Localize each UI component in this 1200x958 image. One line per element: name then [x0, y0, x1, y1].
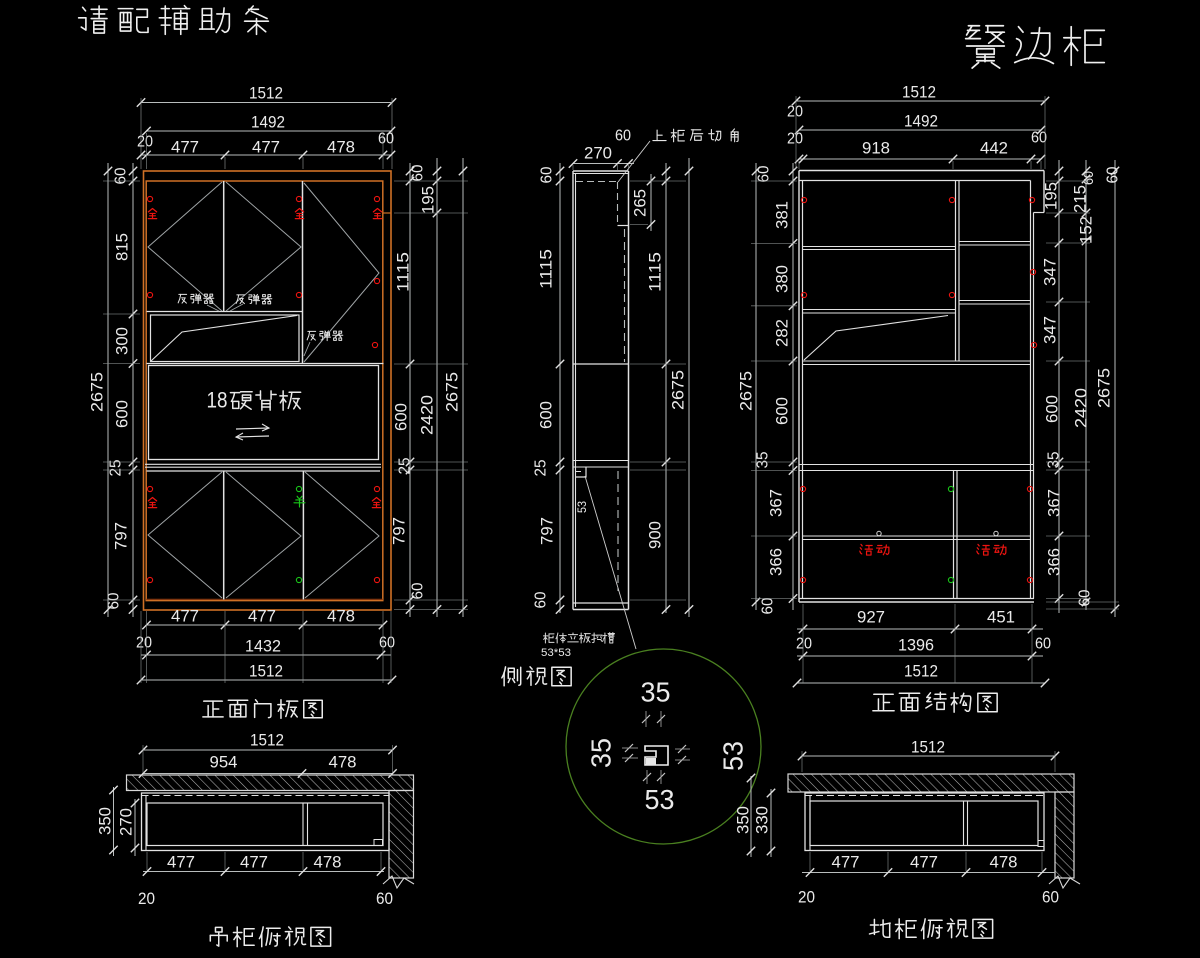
- svg-text:2420: 2420: [1072, 388, 1091, 428]
- svg-text:20: 20: [136, 635, 152, 652]
- svg-text:18: 18: [207, 388, 228, 413]
- svg-text:1115: 1115: [394, 252, 413, 292]
- svg-text:366: 366: [767, 548, 786, 576]
- svg-text:350: 350: [96, 807, 115, 835]
- svg-text:2675: 2675: [1095, 368, 1114, 408]
- svg-text:20: 20: [137, 134, 153, 151]
- svg-text:2675: 2675: [669, 370, 688, 410]
- svg-text:600: 600: [537, 401, 556, 429]
- svg-text:60: 60: [760, 597, 777, 614]
- svg-text:215: 215: [1071, 185, 1090, 213]
- svg-text:20: 20: [787, 104, 803, 121]
- svg-text:60: 60: [410, 582, 427, 599]
- svg-text:797: 797: [538, 517, 557, 545]
- svg-text:2675: 2675: [88, 372, 107, 412]
- svg-text:600: 600: [113, 400, 132, 428]
- svg-text:60: 60: [615, 128, 631, 145]
- svg-text:918: 918: [862, 139, 890, 158]
- svg-text:1512: 1512: [250, 731, 284, 750]
- svg-text:152: 152: [1077, 216, 1096, 244]
- svg-text:60: 60: [1077, 589, 1094, 606]
- svg-text:60: 60: [378, 131, 394, 148]
- svg-text:1432: 1432: [245, 637, 281, 656]
- svg-text:477: 477: [240, 853, 268, 872]
- svg-text:1512: 1512: [249, 662, 283, 681]
- svg-text:20: 20: [796, 636, 812, 653]
- svg-text:797: 797: [112, 522, 131, 550]
- svg-text:1115: 1115: [646, 252, 665, 292]
- svg-text:35: 35: [1046, 451, 1063, 468]
- svg-text:477: 477: [252, 138, 280, 157]
- svg-text:270: 270: [584, 144, 612, 163]
- svg-text:366: 366: [1045, 548, 1064, 576]
- svg-text:53: 53: [645, 784, 675, 815]
- svg-text:1512: 1512: [249, 84, 283, 103]
- svg-text:478: 478: [327, 607, 355, 626]
- svg-text:25: 25: [533, 459, 550, 476]
- svg-text:478: 478: [327, 138, 355, 157]
- svg-text:60: 60: [539, 166, 556, 183]
- svg-text:477: 477: [167, 853, 195, 872]
- svg-text:797: 797: [390, 517, 409, 545]
- svg-text:2420: 2420: [418, 395, 437, 435]
- svg-text:20: 20: [798, 888, 815, 907]
- svg-text:1512: 1512: [902, 83, 936, 102]
- svg-text:2675: 2675: [443, 372, 462, 412]
- svg-text:1492: 1492: [904, 112, 938, 131]
- svg-text:900: 900: [646, 521, 665, 549]
- svg-text:380: 380: [773, 265, 792, 293]
- svg-text:477: 477: [248, 607, 276, 626]
- svg-text:53*53: 53*53: [541, 647, 571, 659]
- svg-text:1492: 1492: [251, 113, 285, 132]
- svg-text:195: 195: [419, 186, 438, 214]
- svg-text:53: 53: [575, 501, 589, 513]
- svg-text:478: 478: [990, 853, 1018, 872]
- svg-text:2675: 2675: [737, 371, 756, 411]
- svg-text:60: 60: [376, 889, 393, 908]
- svg-text:53: 53: [718, 741, 749, 771]
- svg-text:381: 381: [773, 201, 792, 229]
- svg-text:300: 300: [113, 327, 132, 355]
- svg-text:270: 270: [117, 808, 136, 836]
- svg-text:60: 60: [1080, 171, 1096, 185]
- svg-text:600: 600: [392, 403, 411, 431]
- svg-text:35: 35: [755, 451, 772, 468]
- svg-text:1396: 1396: [898, 636, 934, 655]
- svg-text:20: 20: [787, 131, 803, 148]
- svg-text:442: 442: [980, 139, 1008, 158]
- svg-text:25: 25: [397, 457, 414, 474]
- svg-text:60: 60: [1042, 888, 1059, 907]
- svg-text:60: 60: [1035, 636, 1051, 653]
- svg-text:1512: 1512: [911, 738, 945, 757]
- svg-text:330: 330: [753, 806, 772, 834]
- svg-text:367: 367: [767, 489, 786, 517]
- svg-text:265: 265: [631, 189, 650, 217]
- svg-text:600: 600: [1043, 395, 1062, 423]
- svg-text:451: 451: [987, 608, 1015, 627]
- svg-text:350: 350: [734, 806, 753, 834]
- svg-text:478: 478: [314, 853, 342, 872]
- svg-text:282: 282: [773, 319, 792, 347]
- svg-text:35: 35: [641, 677, 671, 708]
- svg-text:60: 60: [410, 164, 427, 181]
- svg-text:815: 815: [113, 233, 132, 261]
- svg-text:347: 347: [1041, 258, 1060, 286]
- svg-text:60: 60: [379, 635, 395, 652]
- svg-text:1115: 1115: [537, 249, 556, 289]
- svg-text:600: 600: [773, 397, 792, 425]
- svg-text:478: 478: [329, 753, 357, 772]
- svg-text:477: 477: [832, 853, 860, 872]
- svg-text:60: 60: [1105, 166, 1122, 183]
- svg-text:195: 195: [1042, 182, 1061, 210]
- svg-text:477: 477: [910, 853, 938, 872]
- svg-text:60: 60: [533, 591, 550, 608]
- svg-text:20: 20: [138, 889, 155, 908]
- svg-text:367: 367: [1045, 489, 1064, 517]
- svg-text:1512: 1512: [904, 662, 938, 681]
- svg-text:954: 954: [210, 753, 238, 772]
- svg-text:927: 927: [857, 608, 885, 627]
- svg-text:35: 35: [586, 738, 617, 768]
- svg-text:347: 347: [1041, 316, 1060, 344]
- svg-text:477: 477: [171, 607, 199, 626]
- svg-text:60: 60: [113, 167, 130, 184]
- svg-text:477: 477: [171, 138, 199, 157]
